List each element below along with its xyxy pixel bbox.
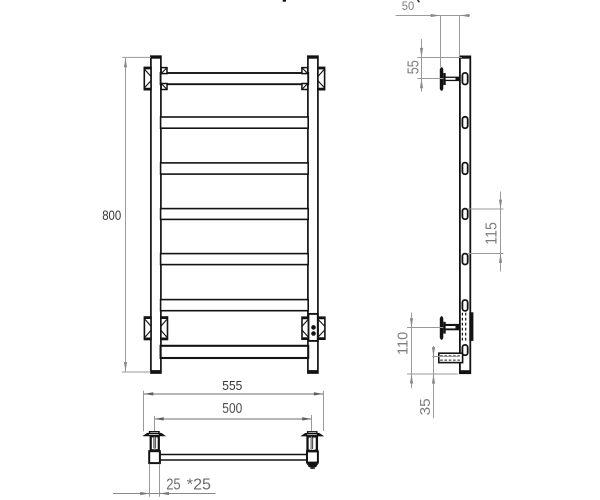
- svg-text:35: 35: [417, 398, 434, 415]
- svg-text:555: 555: [222, 378, 242, 393]
- svg-text:50: 50: [402, 0, 415, 13]
- svg-text:110: 110: [396, 332, 412, 355]
- svg-text:115: 115: [484, 222, 501, 245]
- svg-text:55: 55: [405, 60, 422, 74]
- svg-text:*25: *25: [187, 476, 211, 493]
- svg-text:800: 800: [102, 207, 121, 223]
- svg-text:25: 25: [166, 476, 181, 493]
- svg-text:500: 500: [222, 401, 242, 417]
